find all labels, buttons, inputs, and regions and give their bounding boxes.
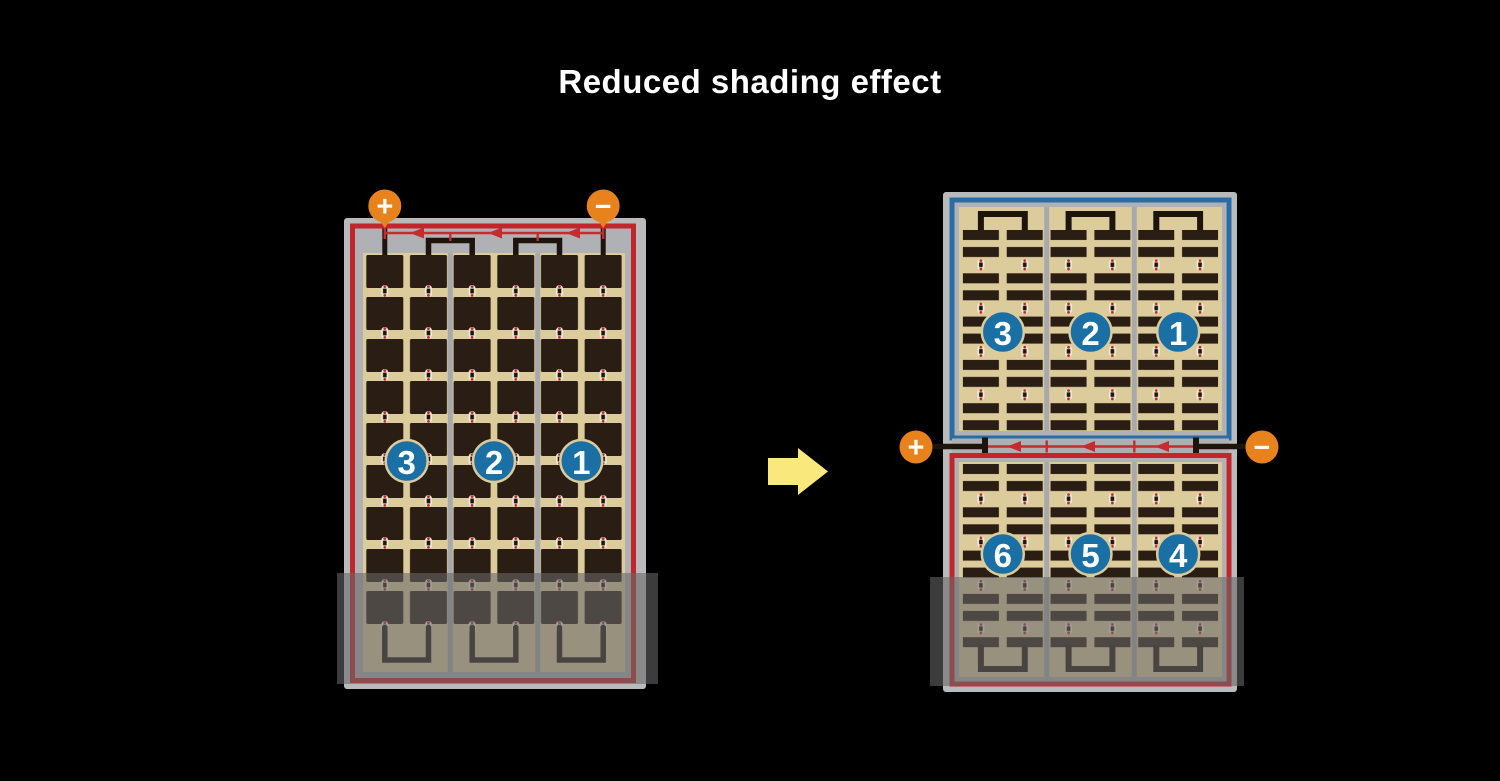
- badge-number: 3: [994, 315, 1012, 352]
- plus-symbol: +: [376, 191, 393, 223]
- shading-overlay: [930, 577, 1244, 686]
- string-badge: 3: [386, 440, 428, 482]
- right-arrow-icon: [768, 448, 828, 495]
- badge-number: 6: [994, 537, 1012, 574]
- badge-number: 1: [572, 444, 590, 481]
- negative-terminal: −: [1246, 431, 1279, 465]
- badge-number: 2: [1081, 315, 1099, 352]
- transform-arrow: [760, 443, 840, 503]
- badge-number: 2: [485, 444, 503, 481]
- minus-symbol: −: [1254, 432, 1271, 464]
- plus-symbol: +: [908, 432, 925, 464]
- string-badge: 1: [560, 440, 602, 482]
- positive-terminal: +: [900, 431, 933, 465]
- left-panel: + − 3 2 1: [330, 183, 670, 703]
- string-badge: 2: [1070, 311, 1112, 353]
- string-badge: 1: [1157, 311, 1199, 353]
- page-title: Reduced shading effect: [0, 63, 1500, 101]
- shading-overlay: [337, 573, 658, 684]
- string-badge: 3: [982, 311, 1024, 353]
- string-badge: 6: [982, 533, 1024, 575]
- string-badge: 5: [1070, 533, 1112, 575]
- badge-number: 4: [1169, 537, 1188, 574]
- badge-number: 5: [1081, 537, 1099, 574]
- badge-number: 3: [398, 444, 416, 481]
- string-badge: 4: [1157, 533, 1199, 575]
- right-panel: + − 3 2 1 6 5 4: [895, 183, 1280, 703]
- badge-number: 1: [1169, 315, 1187, 352]
- string-badge: 2: [473, 440, 515, 482]
- diagram-canvas: Reduced shading effect: [0, 0, 1500, 781]
- minus-symbol: −: [595, 191, 612, 223]
